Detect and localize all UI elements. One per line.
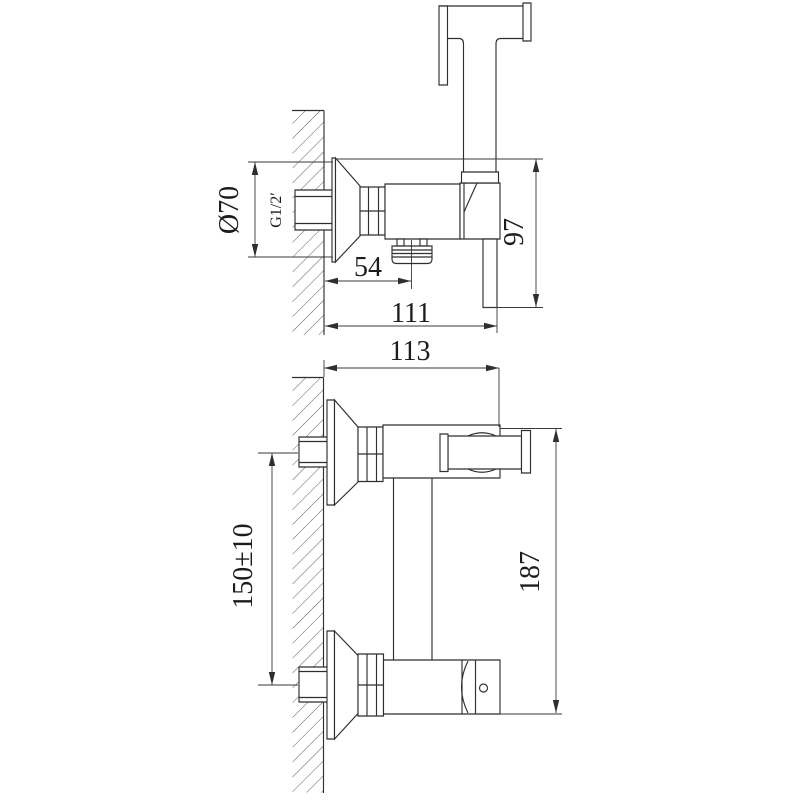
mixer-body [384, 660, 501, 714]
inlet-pipe-side [295, 190, 332, 230]
side-view: Ø70 G1/2′ 54 111 97 [214, 3, 543, 335]
holder-outline [460, 183, 500, 239]
d113-ext-lines [324, 360, 499, 427]
hand-sprayer [439, 3, 531, 172]
outlet-coupling [392, 246, 432, 264]
d150-arrow-down [269, 672, 275, 685]
lower-inlet-pipe [299, 667, 331, 702]
lever-handle-side [483, 239, 497, 308]
lower-hex-nut [358, 654, 384, 716]
drawing-canvas: Ø70 G1/2′ 54 111 97 [0, 0, 800, 800]
dimension-113: 113 [324, 336, 499, 427]
d187-arrow-up [553, 429, 559, 442]
d111-arrow-right [484, 323, 497, 329]
front-view: 113 150±10 187 [228, 336, 562, 793]
d54-label: 54 [354, 252, 382, 283]
d150-ext-lines [258, 453, 298, 685]
d97-label: 97 [499, 218, 530, 246]
upper-hex-nut [358, 427, 383, 482]
d111-arrow-left [325, 323, 338, 329]
sprayer-head-underside-right [496, 39, 523, 45]
escutcheon-cone [336, 158, 361, 262]
dia70-arrow-up [252, 162, 258, 175]
sprayer-spray-face [439, 6, 448, 85]
d54-arrow-right [398, 278, 411, 284]
bracket-tube [448, 436, 522, 469]
d113-label: 113 [390, 336, 431, 367]
inlet-body [299, 667, 331, 702]
escutcheon-cone [335, 631, 359, 739]
valve-body-side [385, 184, 460, 239]
d150-arrow-up [269, 453, 275, 466]
holder-body-front [383, 425, 531, 478]
riser-pipe [394, 478, 433, 660]
escutcheon-cone [335, 400, 359, 505]
lower-escutcheon [327, 631, 358, 739]
d113-arrow-left [324, 365, 337, 371]
d97-arrow-up [533, 159, 539, 172]
escutcheon-backplate [327, 631, 335, 739]
technical-drawing-page: Ø70 G1/2′ 54 111 97 [0, 0, 800, 800]
d111-label: 111 [391, 298, 431, 329]
dimension-150: 150±10 [228, 453, 298, 685]
upper-escutcheon [327, 400, 358, 505]
hex-nut-side [360, 187, 385, 235]
upper-inlet-pipe [299, 437, 331, 467]
dia70-label: Ø70 [214, 186, 245, 234]
d150-label: 150±10 [228, 523, 259, 608]
dia70-arrow-down [252, 244, 258, 257]
d113-arrow-right [486, 365, 499, 371]
g12-label: G1/2′ [268, 192, 285, 228]
mixer-body-front [384, 660, 501, 714]
dimension-111: 111 [325, 298, 497, 333]
escutcheon-side [332, 158, 360, 262]
sprayer-holder-side [460, 172, 500, 239]
outlet-tab-right [420, 239, 427, 246]
d187-label: 187 [515, 551, 546, 593]
d97-arrow-down [533, 294, 539, 307]
escutcheon-backplate [327, 400, 335, 505]
holder-collar [462, 172, 499, 183]
outlet-tab-left [397, 239, 404, 246]
sprayer-head-end-cap [523, 3, 531, 41]
d54-arrow-left [325, 278, 338, 284]
d187-arrow-down [553, 700, 559, 713]
sprayer-head-underside-left [448, 39, 464, 45]
bracket-cap-left [440, 434, 448, 472]
bracket-cap-right [522, 431, 531, 474]
